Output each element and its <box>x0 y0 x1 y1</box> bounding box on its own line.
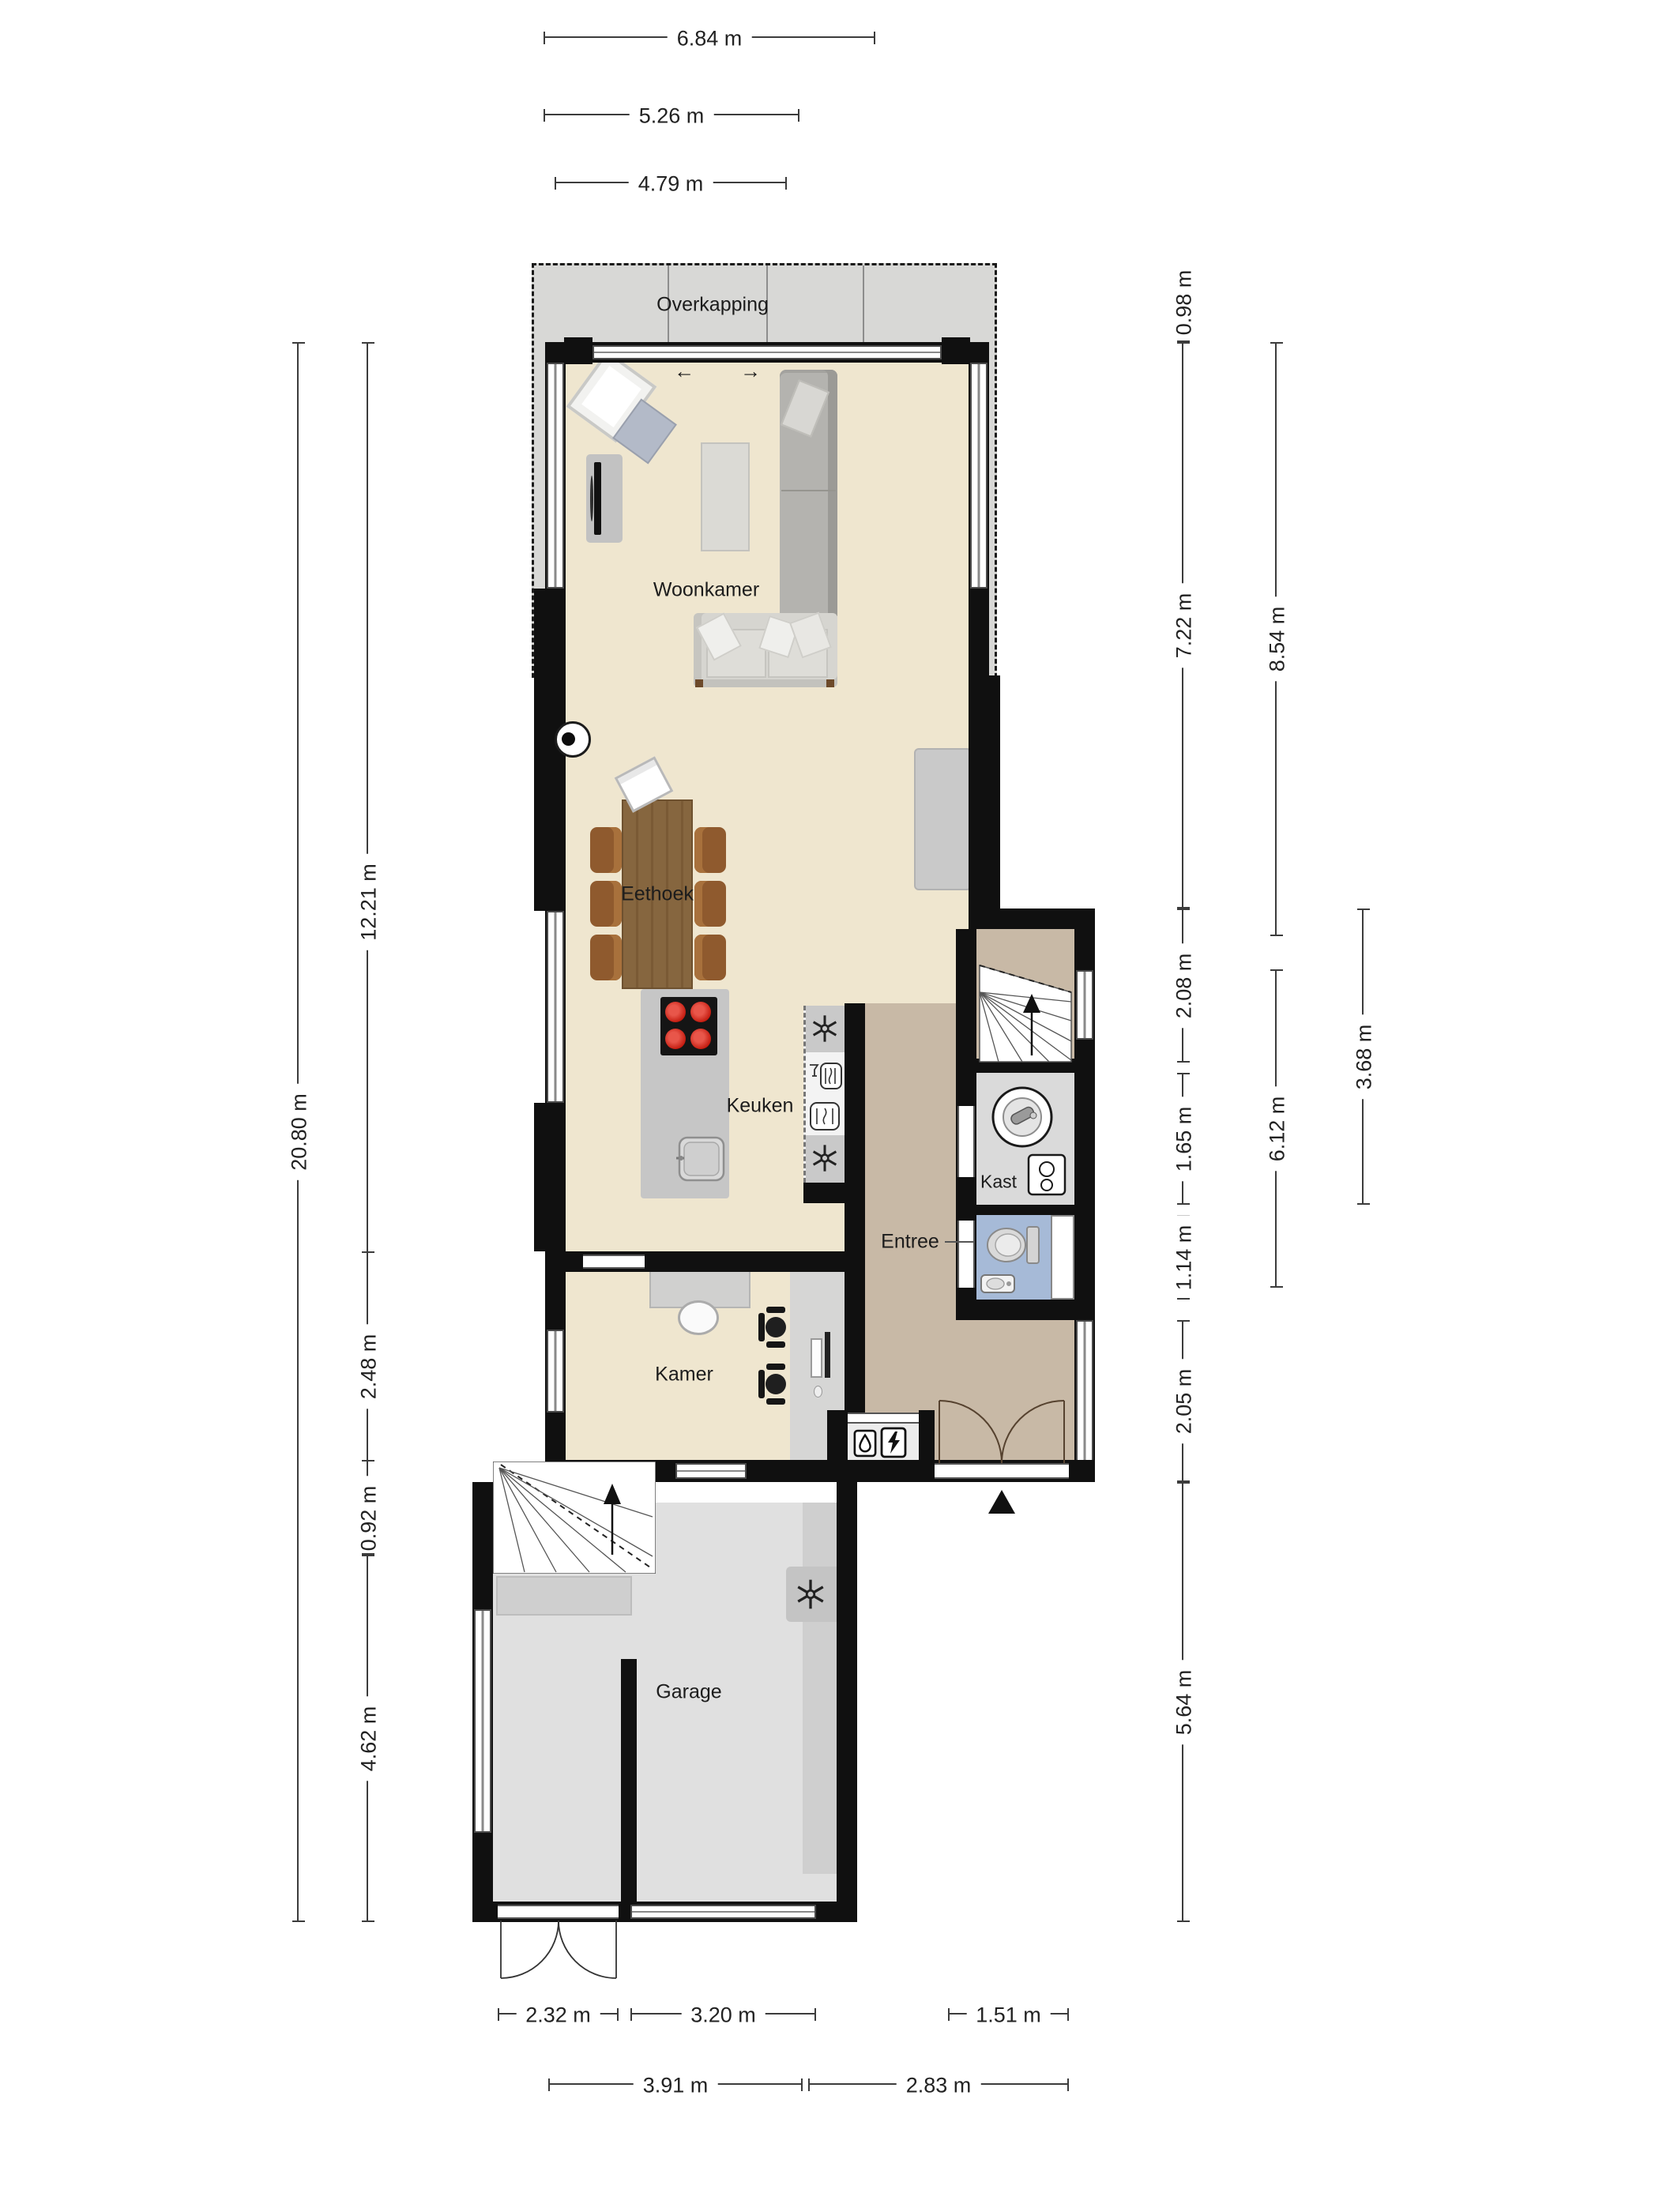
room-label-garage: Garage <box>656 1681 721 1704</box>
sofa-foot <box>695 679 703 687</box>
burner <box>665 1002 686 1022</box>
entree-leader-line <box>945 1241 975 1243</box>
room-label-eethoek: Eethoek <box>621 883 694 906</box>
sliding-door-arrow-left: ← <box>674 359 694 384</box>
sliding-door <box>592 345 942 359</box>
extractor-fan-icon <box>809 1013 841 1044</box>
garage-staircase <box>493 1461 656 1574</box>
meter-closet-wall <box>919 1410 935 1460</box>
kamer-front-window <box>675 1463 747 1479</box>
tv-lens <box>590 476 593 521</box>
kitchen-sink <box>676 1134 727 1183</box>
dim-bottom-5: 2.83 m <box>808 2083 1069 2085</box>
garage-double-door-opening <box>498 1905 619 1919</box>
monitor <box>825 1332 830 1378</box>
dim-left-4: 4.62 m <box>367 1555 368 1922</box>
dim-top-2: 5.26 m <box>544 114 799 115</box>
dining-chair <box>590 881 622 927</box>
garage-partition-wall <box>621 1659 637 1902</box>
oven-icon <box>807 1100 842 1133</box>
garage-double-door <box>498 1919 619 2006</box>
kast-wc-wall <box>976 1205 1074 1215</box>
garage-fan-icon <box>793 1577 828 1612</box>
room-label-entree: Entree <box>881 1231 939 1254</box>
west-wall-pier <box>534 1103 566 1251</box>
garage-sectional-door <box>630 1905 816 1919</box>
dim-left-2: 2.48 m <box>367 1251 368 1482</box>
floor-lamp-dot <box>562 732 575 746</box>
dim-right-2: 7.22 m <box>1182 342 1183 908</box>
dim-bottom-4: 3.91 m <box>548 2083 803 2085</box>
window <box>547 1330 564 1413</box>
dining-chair <box>590 827 622 873</box>
dim-right-4: 1.65 m <box>1182 1073 1183 1205</box>
meter-closet-door <box>848 1413 919 1424</box>
east-wall-pier <box>969 675 1000 908</box>
dim-bottom-2: 3.20 m <box>630 2013 816 2014</box>
extractor-fan-icon <box>809 1142 841 1174</box>
dim-right-9: 6.12 m <box>1275 969 1277 1288</box>
dim-top-1: 6.84 m <box>544 36 875 38</box>
garage-window <box>474 1609 491 1833</box>
dim-right-10: 3.68 m <box>1362 908 1364 1205</box>
dim-left-total: 20.80 m <box>297 342 299 1922</box>
dim-right-6: 2.05 m <box>1182 1320 1183 1482</box>
kamer-door <box>583 1255 645 1269</box>
hall-west-wall <box>845 1003 865 1414</box>
desk-chair <box>678 1300 719 1335</box>
kast-door <box>957 1106 975 1177</box>
dim-right-5: 1.14 m <box>1182 1215 1183 1300</box>
dishwasher-icon <box>805 1059 843 1093</box>
wc-door <box>957 1221 975 1288</box>
floorplan-canvas: ← → <box>0 0 1659 2212</box>
garage-counter <box>496 1576 632 1616</box>
sofa-chaise-cushion-line <box>781 490 836 491</box>
window <box>547 911 564 1103</box>
window <box>1076 970 1093 1040</box>
dining-chair <box>694 935 726 980</box>
wc-south-wall <box>956 1300 1095 1320</box>
boiler <box>1027 1152 1068 1198</box>
mouse <box>814 1386 822 1398</box>
water-meter-icon <box>853 1427 877 1458</box>
front-door <box>935 1371 1069 1465</box>
dim-left-3: 0.92 m <box>367 1482 368 1555</box>
tv-screen <box>594 462 601 535</box>
room-label-kamer: Kamer <box>655 1364 713 1386</box>
dim-right-1: 0.98 m <box>1182 263 1183 342</box>
garage-east-wall <box>837 1482 857 1922</box>
burner <box>665 1029 686 1049</box>
burner <box>690 1029 711 1049</box>
dim-right-3: 2.08 m <box>1182 908 1183 1063</box>
wc-duct-shaft <box>1051 1215 1074 1300</box>
sliding-door-arrow-right: → <box>740 359 761 384</box>
dining-chair <box>694 827 726 873</box>
dim-top-3: 4.79 m <box>555 182 787 183</box>
room-label-keuken: Keuken <box>727 1095 794 1118</box>
dining-chair <box>590 935 622 980</box>
keyboard <box>811 1338 822 1378</box>
dim-right-7: 5.64 m <box>1182 1482 1183 1922</box>
counter-end-wall <box>803 1183 865 1203</box>
sofa-foot <box>826 679 834 687</box>
front-door-opening <box>935 1463 1069 1479</box>
window <box>1076 1320 1093 1468</box>
office-chair <box>757 1305 788 1349</box>
room-label-overkapping: Overkapping <box>656 294 769 317</box>
room-label-woonkamer: Woonkamer <box>653 579 759 602</box>
toilet <box>983 1224 1041 1266</box>
dim-right-8: 8.54 m <box>1275 342 1277 936</box>
electric-meter-icon <box>880 1425 907 1458</box>
wall-post <box>564 337 592 364</box>
wardrobe <box>914 748 972 890</box>
main-staircase <box>976 929 1074 1063</box>
wall-post <box>942 337 970 364</box>
overkapping-post-line <box>863 265 864 342</box>
dim-bottom-3: 1.51 m <box>948 2013 1069 2014</box>
office-chair <box>757 1362 788 1406</box>
dining-chair <box>694 881 726 927</box>
burner <box>690 1002 711 1022</box>
dim-bottom-1: 2.32 m <box>498 2013 619 2014</box>
garage-cabinets <box>803 1503 837 1874</box>
meter-closet-wall <box>827 1410 848 1460</box>
washing-machine <box>989 1084 1055 1150</box>
window <box>970 363 987 589</box>
coffee-table <box>701 442 750 551</box>
window <box>547 363 564 589</box>
entrance-marker <box>988 1490 1015 1514</box>
wc-sink <box>980 1273 1016 1294</box>
room-label-kast: Kast <box>980 1172 1017 1193</box>
